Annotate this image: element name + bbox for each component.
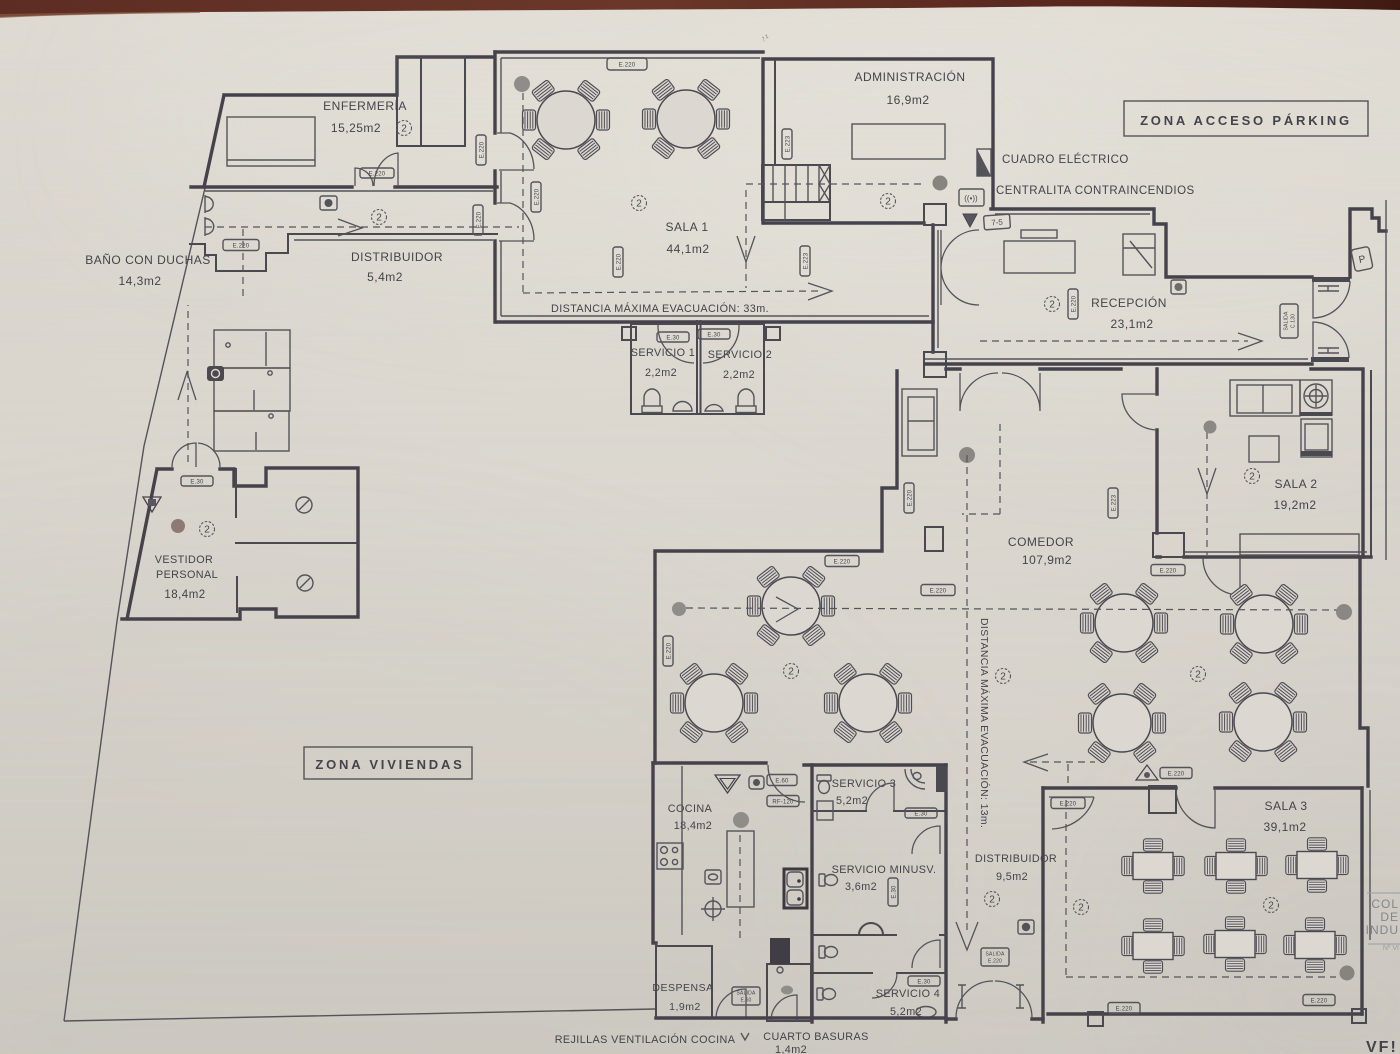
svg-text:SALIDA: SALIDA <box>986 952 1005 958</box>
svg-text:E.60: E.60 <box>775 778 789 784</box>
svg-text:2,2m2: 2,2m2 <box>645 367 677 379</box>
svg-text:E.223: E.223 <box>803 252 809 269</box>
svg-text:ENFERMERÍA: ENFERMERÍA <box>323 98 407 113</box>
svg-text:19,2m2: 19,2m2 <box>1273 498 1316 512</box>
svg-text:INDU: INDU <box>1366 923 1399 937</box>
svg-text:C.130: C.130 <box>1291 314 1297 328</box>
svg-text:E.220: E.220 <box>534 188 540 205</box>
svg-text:E.30: E.30 <box>666 335 680 341</box>
svg-text:107,9m2: 107,9m2 <box>1022 553 1072 567</box>
svg-text:E.220: E.220 <box>233 243 250 249</box>
svg-text:CUADRO ELÉCTRICO: CUADRO ELÉCTRICO <box>1002 153 1129 166</box>
svg-text:PERSONAL: PERSONAL <box>156 569 218 581</box>
svg-text:E.220: E.220 <box>1311 998 1328 1004</box>
svg-text:E.220: E.220 <box>1160 568 1177 574</box>
svg-text:3,6m2: 3,6m2 <box>845 881 877 893</box>
svg-text:E.220: E.220 <box>988 959 1002 965</box>
svg-text:E.220: E.220 <box>616 253 622 270</box>
svg-text:COL: COL <box>1371 897 1399 911</box>
svg-text:DISTANCIA MÁXIMA EVACUACIÓN:: DISTANCIA MÁXIMA EVACUACIÓN: 33m. <box>551 302 769 315</box>
svg-text:DESPENSA: DESPENSA <box>652 982 713 994</box>
svg-text:39,1m2: 39,1m2 <box>1263 820 1306 834</box>
svg-text:E.30: E.30 <box>891 885 897 899</box>
svg-text:E.220: E.220 <box>479 141 485 158</box>
svg-text:5,4m2: 5,4m2 <box>367 270 403 284</box>
svg-text:ADMINISTRACIÓN: ADMINISTRACIÓN <box>854 69 965 84</box>
svg-text:E.60: E.60 <box>740 998 751 1004</box>
svg-text:23,1m2: 23,1m2 <box>1110 317 1153 331</box>
svg-text:5,2m2: 5,2m2 <box>836 795 868 807</box>
svg-text:E.220: E.220 <box>1060 801 1077 807</box>
svg-text:1,9m2: 1,9m2 <box>669 1001 701 1013</box>
svg-text:E.223: E.223 <box>785 135 791 152</box>
svg-text:DE: DE <box>1380 910 1399 924</box>
svg-text:14,3m2: 14,3m2 <box>118 274 161 288</box>
svg-text:44,1m2: 44,1m2 <box>666 242 709 256</box>
svg-text:E.220: E.220 <box>834 559 851 565</box>
svg-text:E.30: E.30 <box>707 332 721 338</box>
svg-text:SALA 1: SALA 1 <box>665 220 708 234</box>
svg-text:CENTRALITA CONTRAINCENDIOS: CENTRALITA CONTRAINCENDIOS <box>996 185 1195 197</box>
svg-text:BAÑO CON DUCHAS: BAÑO CON DUCHAS <box>85 253 211 267</box>
svg-text:E.220: E.220 <box>1071 295 1077 312</box>
svg-text:15,25m2: 15,25m2 <box>331 121 381 135</box>
svg-text:E.220: E.220 <box>930 588 947 594</box>
svg-text:DISTRIBUIDOR: DISTRIBUIDOR <box>351 250 443 264</box>
svg-text:REJILLAS VENTILACIÓN COCINA: REJILLAS VENTILACIÓN COCINA <box>555 1033 736 1046</box>
svg-text:E.220: E.220 <box>619 63 636 69</box>
svg-text:CUARTO BASURAS: CUARTO BASURAS <box>763 1031 868 1043</box>
svg-text:E.220: E.220 <box>666 642 672 659</box>
svg-text:E.220: E.220 <box>1168 771 1185 777</box>
svg-text:SALIDA: SALIDA <box>1284 311 1290 330</box>
svg-text:E.30: E.30 <box>190 479 204 485</box>
svg-text:7-5: 7-5 <box>991 218 1004 228</box>
svg-text:((•)): ((•)) <box>964 194 978 203</box>
svg-text:Nº VI: Nº VI <box>1383 945 1399 952</box>
svg-text:DISTANCIA MÁXIMA EVACUACIÓN:: DISTANCIA MÁXIMA EVACUACIÓN: 13m. <box>978 618 991 828</box>
svg-text:VESTIDOR: VESTIDOR <box>155 554 213 566</box>
svg-text:E.30: E.30 <box>917 979 931 985</box>
svg-text:VF!: VF! <box>1366 1039 1398 1054</box>
svg-text:SERVICIO 1: SERVICIO 1 <box>631 347 695 359</box>
svg-text:SERVICIO MINUSV.: SERVICIO MINUSV. <box>832 864 937 876</box>
svg-text:E.223: E.223 <box>1111 494 1117 511</box>
svg-text:ZONA ACCESO PÁRKING: ZONA ACCESO PÁRKING <box>1140 113 1352 128</box>
svg-text:18,4m2: 18,4m2 <box>674 820 712 832</box>
svg-text:16,9m2: 16,9m2 <box>886 93 929 107</box>
svg-text:E.30: E.30 <box>914 811 928 817</box>
svg-text:E.220: E.220 <box>907 489 913 506</box>
svg-text:E.220: E.220 <box>1116 1006 1133 1012</box>
svg-text:COMEDOR: COMEDOR <box>1008 535 1074 549</box>
svg-text:9,5m2: 9,5m2 <box>996 871 1028 883</box>
svg-text:18,4m2: 18,4m2 <box>164 589 205 601</box>
svg-text:SALA 2: SALA 2 <box>1274 477 1317 491</box>
svg-text:2,2m2: 2,2m2 <box>723 369 755 381</box>
svg-text:RF-120: RF-120 <box>772 799 794 805</box>
svg-text:ZONA VIVIENDAS: ZONA VIVIENDAS <box>315 757 464 772</box>
svg-text:RECEPCIÓN: RECEPCIÓN <box>1091 295 1167 310</box>
svg-text:5,2m2: 5,2m2 <box>890 1006 922 1018</box>
svg-text:SALA 3: SALA 3 <box>1264 799 1307 813</box>
svg-text:E.220: E.220 <box>476 211 482 228</box>
svg-text:1,4m2: 1,4m2 <box>775 1044 807 1054</box>
svg-text:E.220: E.220 <box>369 171 386 177</box>
svg-text:COCINA: COCINA <box>668 803 713 815</box>
svg-text:SALIDA: SALIDA <box>737 991 756 997</box>
svg-text:DISTRIBUIDOR: DISTRIBUIDOR <box>975 853 1057 865</box>
